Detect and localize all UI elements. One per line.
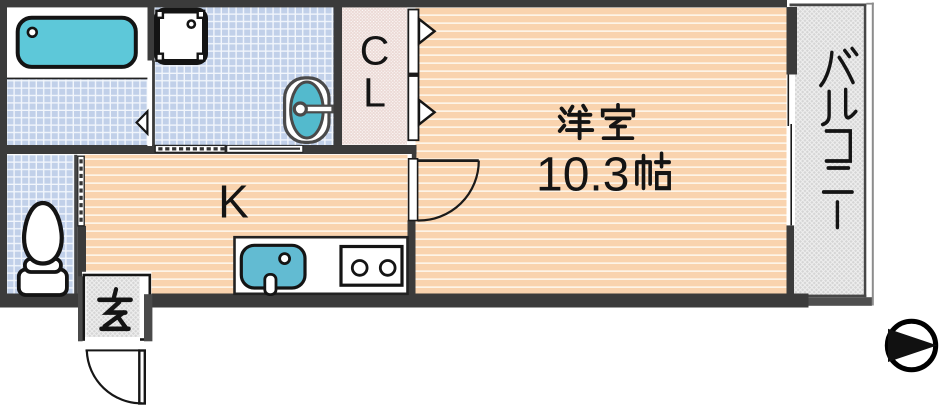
svg-text:C: C [360,28,390,74]
svg-text:L: L [363,70,386,116]
svg-text:K: K [218,176,249,228]
svg-text:10.3: 10.3 [536,149,629,202]
